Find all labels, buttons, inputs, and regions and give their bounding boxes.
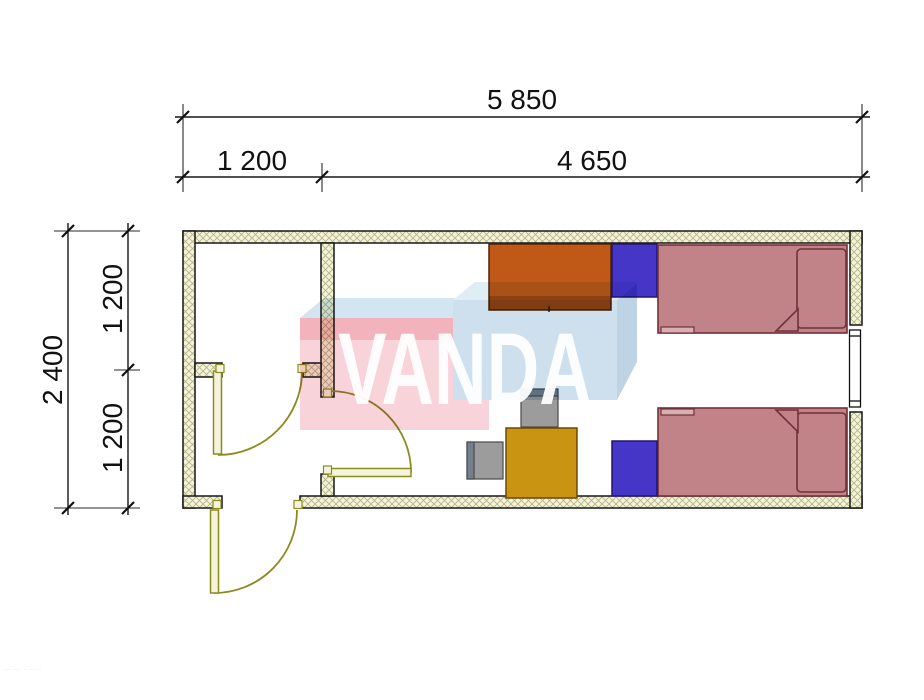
bed-top-pillow [797,249,846,328]
door-closet-leaf [214,371,222,454]
locker-bottom [612,441,657,496]
floor-plan-svg: 5 850 1 200 4 650 2 400 1 200 1 200 [0,0,924,700]
door-entrance-swing-arc [214,510,297,593]
wall-bottom-right [300,496,862,508]
fine-print: ···· ··· ·· ·· ·· [3,667,41,673]
floor-plan-page: 5 850 1 200 4 650 2 400 1 200 1 200 [0,0,924,700]
door-entrance-leaf [211,510,219,593]
door-frame-cap [324,466,332,474]
chair-side-back [467,442,474,479]
wall-left [183,231,195,508]
watermark-logo-text: VANDA [338,312,592,426]
dim-label-room-width: 4 650 [557,145,627,176]
watermark-blue-top-face [453,282,637,300]
door-main-leaf [328,469,411,477]
dim-label-lower-depth: 1 200 [97,403,128,473]
window-frame [850,330,861,407]
desk [506,428,577,498]
door-closet [214,365,307,456]
door-frame-cap [213,501,221,509]
door-entrance [211,501,303,594]
dim-label-total-width: 5 850 [487,84,557,115]
door-frame-cap [294,501,302,509]
wall-partition-stub [321,474,334,496]
bed-top [658,245,847,333]
dim-label-entry-width: 1 200 [217,145,287,176]
bed-bottom-pillow [797,413,846,492]
window-right-wall [850,330,861,407]
door-closet-swing-arc [218,371,302,455]
door-frame-cap [216,365,224,373]
wall-right-lower [850,412,862,508]
chair-side [467,442,503,479]
bed-top-step [661,327,694,333]
wall-top [183,231,862,243]
dim-label-total-depth: 2 400 [37,335,68,405]
wall-right-upper [850,231,862,325]
bed-bottom [658,408,847,496]
watermark-blue-side-face [617,283,637,400]
bed-bottom-step [661,409,694,415]
dim-label-upper-depth: 1 200 [97,264,128,334]
